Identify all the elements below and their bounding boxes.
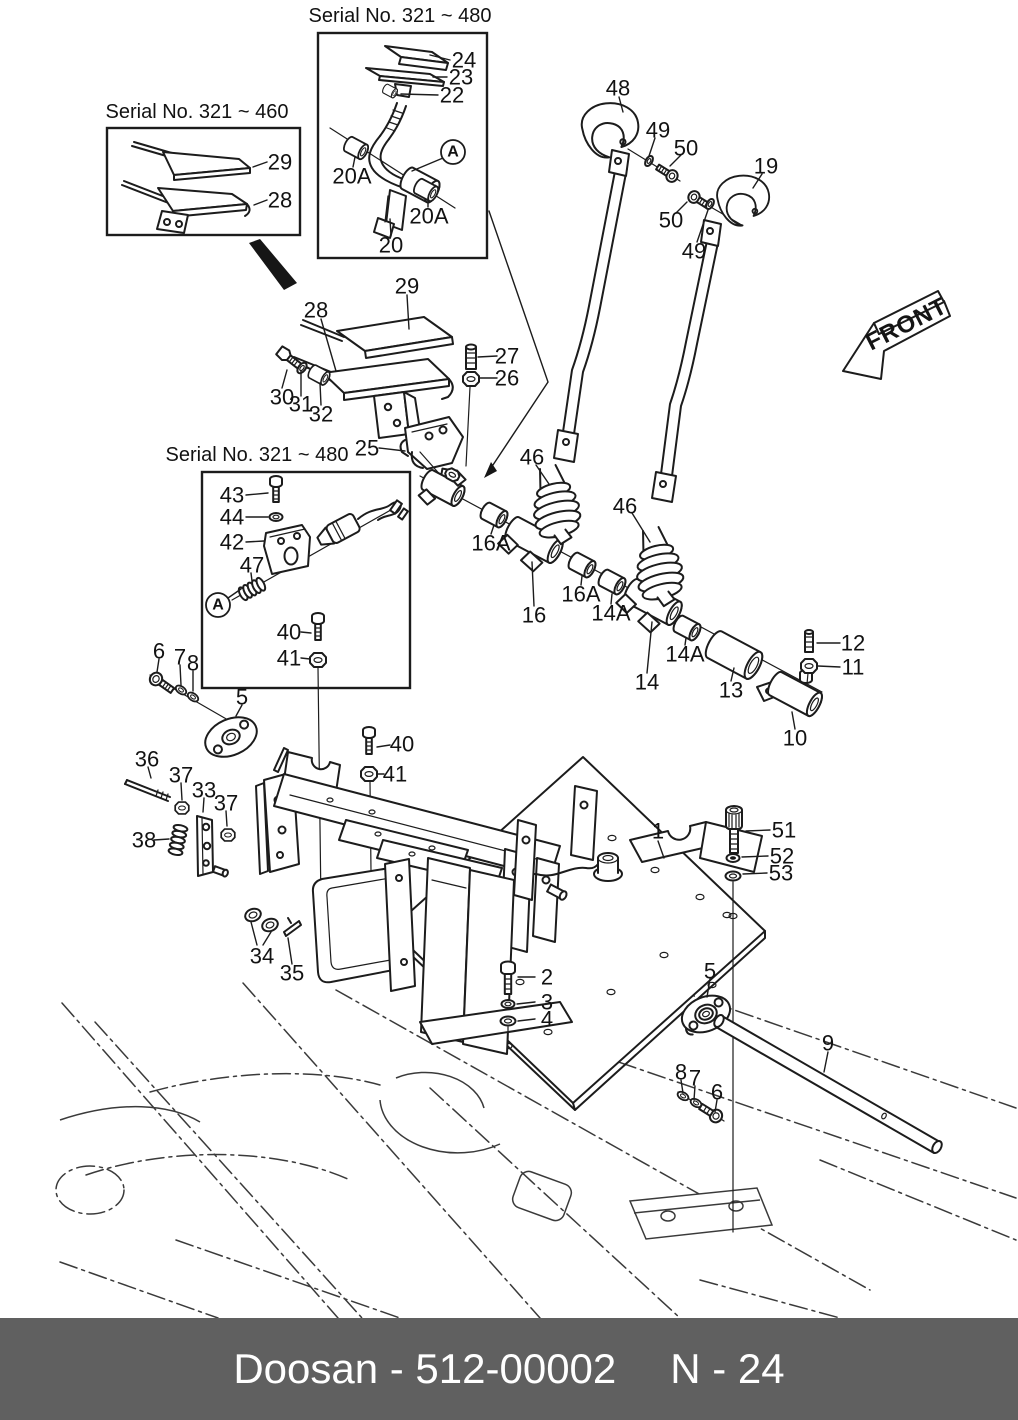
callout-12: 12 bbox=[841, 631, 865, 656]
washer-44 bbox=[270, 513, 283, 521]
callout-6: 6 bbox=[711, 1080, 723, 1105]
callout-48: 48 bbox=[606, 76, 630, 101]
callout-16A: 16A bbox=[471, 531, 510, 556]
bolt-40 bbox=[312, 613, 324, 640]
bolt-27 bbox=[466, 345, 476, 370]
callout-49: 49 bbox=[646, 118, 670, 143]
bushing-32 bbox=[306, 364, 331, 386]
callout-leader-53 bbox=[743, 873, 767, 874]
callout-leader-38 bbox=[154, 839, 169, 840]
callout-14A: 14A bbox=[591, 601, 630, 626]
callout-16: 16 bbox=[522, 603, 546, 628]
bolt-6 bbox=[697, 1101, 724, 1125]
callout-7: 7 bbox=[689, 1066, 701, 1091]
callout-8: 8 bbox=[187, 651, 199, 676]
callout-leader-43 bbox=[246, 493, 268, 495]
callout-leader-29 bbox=[253, 162, 267, 167]
washers-34 bbox=[243, 907, 279, 945]
callout-leader-42 bbox=[246, 541, 264, 542]
rod-36 bbox=[125, 780, 170, 801]
front-direction-arrow: FRONT bbox=[843, 291, 952, 379]
callout-leader-41 bbox=[301, 658, 310, 659]
callout-34: 34 bbox=[250, 944, 274, 969]
callout-leader-40 bbox=[301, 632, 311, 633]
callout-leader-52 bbox=[742, 856, 768, 857]
spring-38 bbox=[168, 824, 188, 856]
callout-40: 40 bbox=[390, 732, 414, 757]
callout-37: 37 bbox=[214, 791, 238, 816]
control-linkage-chain bbox=[414, 452, 825, 718]
washer-3 bbox=[502, 1000, 515, 1008]
callout-14: 14 bbox=[635, 670, 659, 695]
callout-42: 42 bbox=[220, 530, 244, 555]
inset-serial-480-top: Serial No. 321 ~ 480 bbox=[309, 5, 548, 478]
inset-box-serial-460 bbox=[107, 128, 300, 235]
nut-41 bbox=[310, 653, 326, 667]
callout-leader-28 bbox=[321, 319, 336, 371]
flange-5 bbox=[199, 710, 263, 765]
callout-8: 8 bbox=[675, 1060, 687, 1085]
callout-leader-11 bbox=[818, 666, 840, 667]
bushing-14A bbox=[596, 568, 627, 596]
footer-page-number: N - 24 bbox=[670, 1345, 784, 1393]
stud-12 bbox=[805, 630, 813, 652]
callout-4: 4 bbox=[541, 1007, 553, 1032]
nut-26 bbox=[463, 372, 479, 386]
callout-46: 46 bbox=[520, 445, 544, 470]
bolt-6 bbox=[147, 670, 176, 696]
callout-51: 51 bbox=[772, 818, 796, 843]
exploded-parts-diagram: Serial No. 321 ~ 460 Serial No. 321 ~ 48… bbox=[0, 0, 1018, 1318]
callout-29: 29 bbox=[268, 150, 292, 175]
callout-14A: 14A bbox=[665, 642, 704, 667]
callout-7: 7 bbox=[174, 645, 186, 670]
parts-catalog-page: Serial No. 321 ~ 460 Serial No. 321 ~ 48… bbox=[0, 0, 1018, 1420]
marker-leader-A bbox=[412, 158, 443, 171]
callout-50: 50 bbox=[659, 208, 683, 233]
callout-50: 50 bbox=[674, 136, 698, 161]
callout-32: 32 bbox=[309, 402, 333, 427]
callout-leader-51 bbox=[746, 830, 770, 831]
callout-leader-40 bbox=[377, 745, 390, 747]
control-levers bbox=[523, 100, 772, 611]
callout-20A: 20A bbox=[409, 204, 448, 229]
inset-label-serial-480-top: Serial No. 321 ~ 480 bbox=[309, 5, 492, 27]
cylinder-13 bbox=[702, 629, 766, 682]
callout-49: 49 bbox=[682, 239, 706, 264]
callout-25: 25 bbox=[355, 436, 379, 461]
callout-2: 2 bbox=[541, 965, 553, 990]
callout-35: 35 bbox=[280, 961, 304, 986]
callout-28: 28 bbox=[304, 298, 328, 323]
washer-53 bbox=[726, 872, 741, 881]
bolt-43 bbox=[270, 476, 282, 502]
marker-A: A bbox=[447, 144, 459, 161]
callout-33: 33 bbox=[192, 778, 216, 803]
nut-11 bbox=[801, 659, 817, 673]
footer-document-number: Doosan - 512-00002 bbox=[233, 1345, 616, 1393]
footer-bar: Doosan - 512-00002 N - 24 bbox=[0, 1318, 1018, 1420]
callout-47: 47 bbox=[240, 553, 264, 578]
callout-53: 53 bbox=[769, 861, 793, 886]
inset-pointer-wedge bbox=[249, 239, 297, 290]
body-10 bbox=[757, 670, 825, 718]
callout-28: 28 bbox=[268, 188, 292, 213]
marker-A: A bbox=[212, 597, 224, 614]
callout-5: 5 bbox=[236, 685, 248, 710]
nut-37 bbox=[175, 802, 189, 814]
callout-leader-22 bbox=[401, 94, 438, 95]
callout-20: 20 bbox=[379, 233, 403, 258]
callout-41: 41 bbox=[277, 646, 301, 671]
callout-36: 36 bbox=[135, 747, 159, 772]
inset-label-serial-460: Serial No. 321 ~ 460 bbox=[106, 101, 289, 123]
front-arrow-label: FRONT bbox=[861, 292, 951, 356]
callout-leader-28 bbox=[254, 200, 267, 205]
shaft-and-flange bbox=[676, 989, 944, 1155]
bolt-40-nut-41-right bbox=[361, 727, 377, 781]
callout-10: 10 bbox=[783, 726, 807, 751]
washer-8 bbox=[186, 691, 200, 704]
callout-40: 40 bbox=[277, 620, 301, 645]
bolt-50 bbox=[654, 162, 679, 184]
callout-46: 46 bbox=[613, 494, 637, 519]
callout-20A: 20A bbox=[332, 164, 371, 189]
callout-44: 44 bbox=[220, 505, 244, 530]
callout-22: 22 bbox=[440, 83, 464, 108]
callout-13: 13 bbox=[719, 678, 743, 703]
callout-11: 11 bbox=[842, 655, 865, 680]
callout-38: 38 bbox=[132, 828, 156, 853]
callout-9: 9 bbox=[822, 1031, 834, 1056]
callout-41: 41 bbox=[383, 762, 407, 787]
bracket-42 bbox=[264, 525, 310, 574]
knob-19 bbox=[715, 173, 772, 228]
nut-37 bbox=[221, 829, 235, 841]
washer-52 bbox=[727, 854, 740, 862]
sensor-body bbox=[315, 500, 408, 550]
inset-label-serial-480-lower: Serial No. 321 ~ 480 bbox=[166, 444, 349, 466]
callout-6: 6 bbox=[153, 639, 165, 664]
inset-reference-arrow bbox=[487, 211, 548, 474]
bracket-33 bbox=[197, 816, 229, 877]
washer-4 bbox=[501, 1017, 516, 1026]
pin-35 bbox=[284, 918, 301, 936]
callout-37: 37 bbox=[169, 763, 193, 788]
callout-19: 19 bbox=[754, 154, 778, 179]
callout-5: 5 bbox=[704, 959, 716, 984]
callout-1: 1 bbox=[652, 819, 664, 844]
callout-29: 29 bbox=[395, 274, 419, 299]
callout-26: 26 bbox=[495, 366, 519, 391]
bushing-16A bbox=[566, 551, 597, 579]
